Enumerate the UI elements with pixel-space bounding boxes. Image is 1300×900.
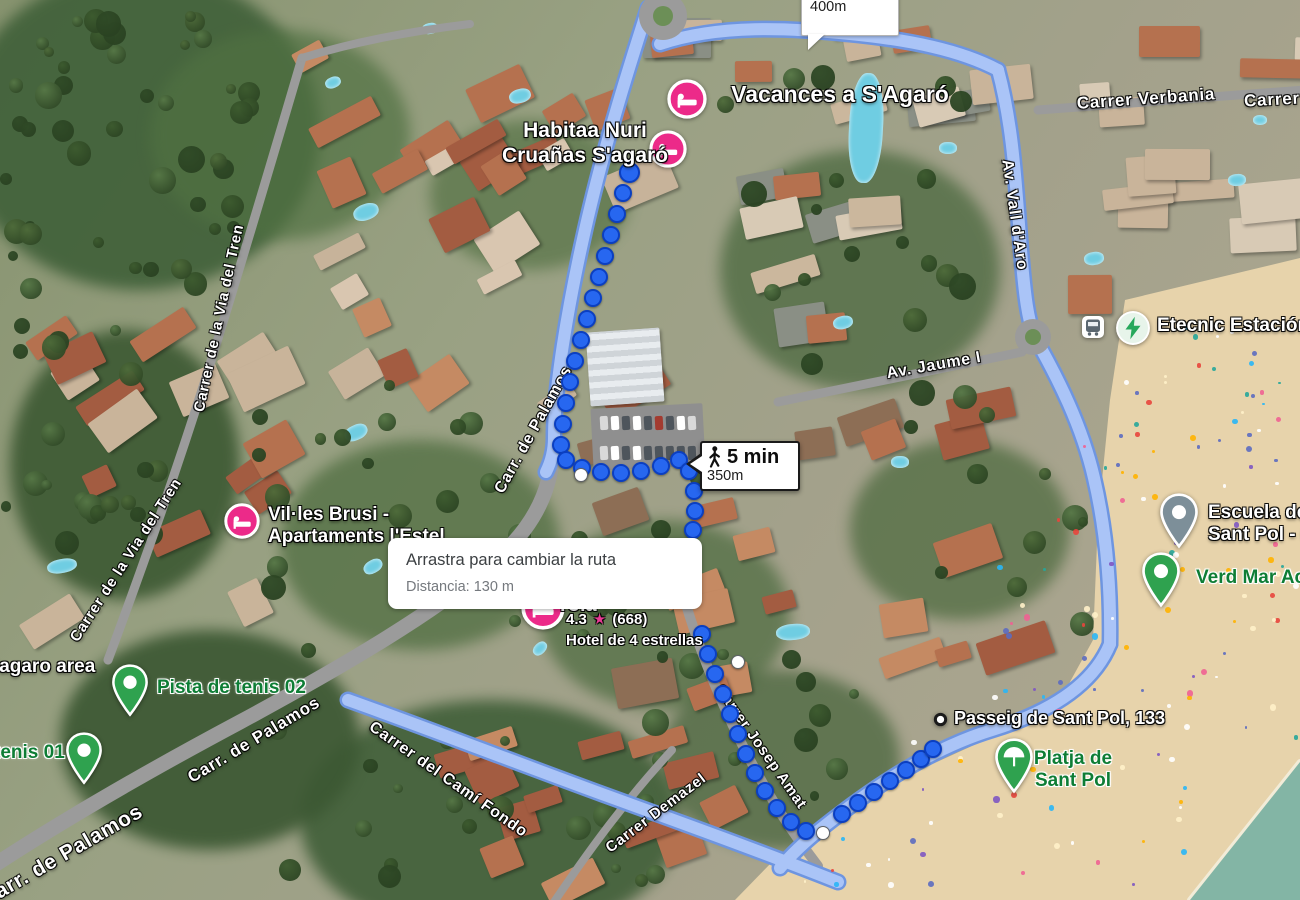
poi-label-pista-de-tenis-02[interactable]: Pista de tenis 02	[157, 677, 306, 699]
route-drag-tooltip: Arrastra para cambiar la ruta Distancia:…	[388, 538, 702, 609]
walking-person-icon	[707, 446, 722, 468]
route-time: 5 min	[727, 446, 779, 468]
pin-gray-pin-escuela-sant-pol[interactable]	[1159, 493, 1199, 550]
poi-label-vacances-sagaro[interactable]: Vacances a S'Agaró	[731, 81, 949, 108]
umbrella-pin-platja-de-sant-pol[interactable]	[994, 738, 1034, 795]
bus-pin-bus-stop[interactable]	[1081, 315, 1105, 339]
route-time-badge-secondary[interactable]: 6 min 400m	[801, 0, 899, 36]
tooltip-distance: Distancia: 130 m	[406, 579, 684, 595]
poi-label-tenis-01[interactable]: tenis 01	[0, 742, 65, 764]
poi-label-sagaro-area[interactable]: S'agaro area	[0, 656, 95, 678]
ring-pin-passeig-sant-pol-133[interactable]	[933, 712, 948, 727]
hotel-pin-vacances-sagaro[interactable]	[667, 79, 707, 119]
hotel-rating[interactable]: 4.3 ★ (668) Hotel de 4 estrellas	[566, 610, 703, 649]
poi-label-etecnic-estacion[interactable]: Etecnic Estación	[1157, 315, 1300, 337]
pin-green-pin-verd-mar[interactable]	[1141, 552, 1181, 609]
hotel-rating-score: 4.3	[566, 611, 587, 628]
badge-pointer	[690, 456, 702, 472]
poi-label-verd-mar[interactable]: Verd Mar Act	[1196, 567, 1300, 589]
pin-green-pin-tenis-01[interactable]	[65, 732, 103, 786]
hotel-category: Hotel de 4 estrellas	[566, 632, 703, 649]
hotel-pin-villes-brusi[interactable]	[224, 503, 260, 539]
hotel-review-count: (668)	[612, 611, 647, 628]
pin-green-pin-pista-de-tenis-02[interactable]	[111, 664, 149, 718]
tooltip-title: Arrastra para cambiar la ruta	[406, 551, 684, 570]
poi-label-passeig-sant-pol-133[interactable]: Passeig de Sant Pol, 133	[954, 708, 1165, 729]
poi-label-habitaa-nuri[interactable]: Habitaa NuriCruañas S'agaró	[502, 119, 668, 169]
bolt-pin-etecnic-estacion[interactable]	[1115, 310, 1151, 346]
poi-layer: Vacances a S'AgaróHabitaa NuriCruañas S'…	[0, 0, 1300, 900]
map-canvas[interactable]: Carrer de la Via del TrenCarrer de la Vi…	[0, 0, 1300, 900]
route-distance: 350m	[707, 468, 793, 485]
route-time-badge-primary[interactable]: 5 min 350m	[700, 441, 800, 491]
poi-label-escuela-sant-pol[interactable]: Escuela deSant Pol - C	[1208, 502, 1300, 547]
star-icon: ★	[593, 610, 606, 628]
badge-pointer	[808, 34, 825, 50]
poi-label-platja-de-sant-pol[interactable]: Platja deSant Pol	[1034, 748, 1112, 793]
route-distance: 400m	[810, 0, 890, 16]
